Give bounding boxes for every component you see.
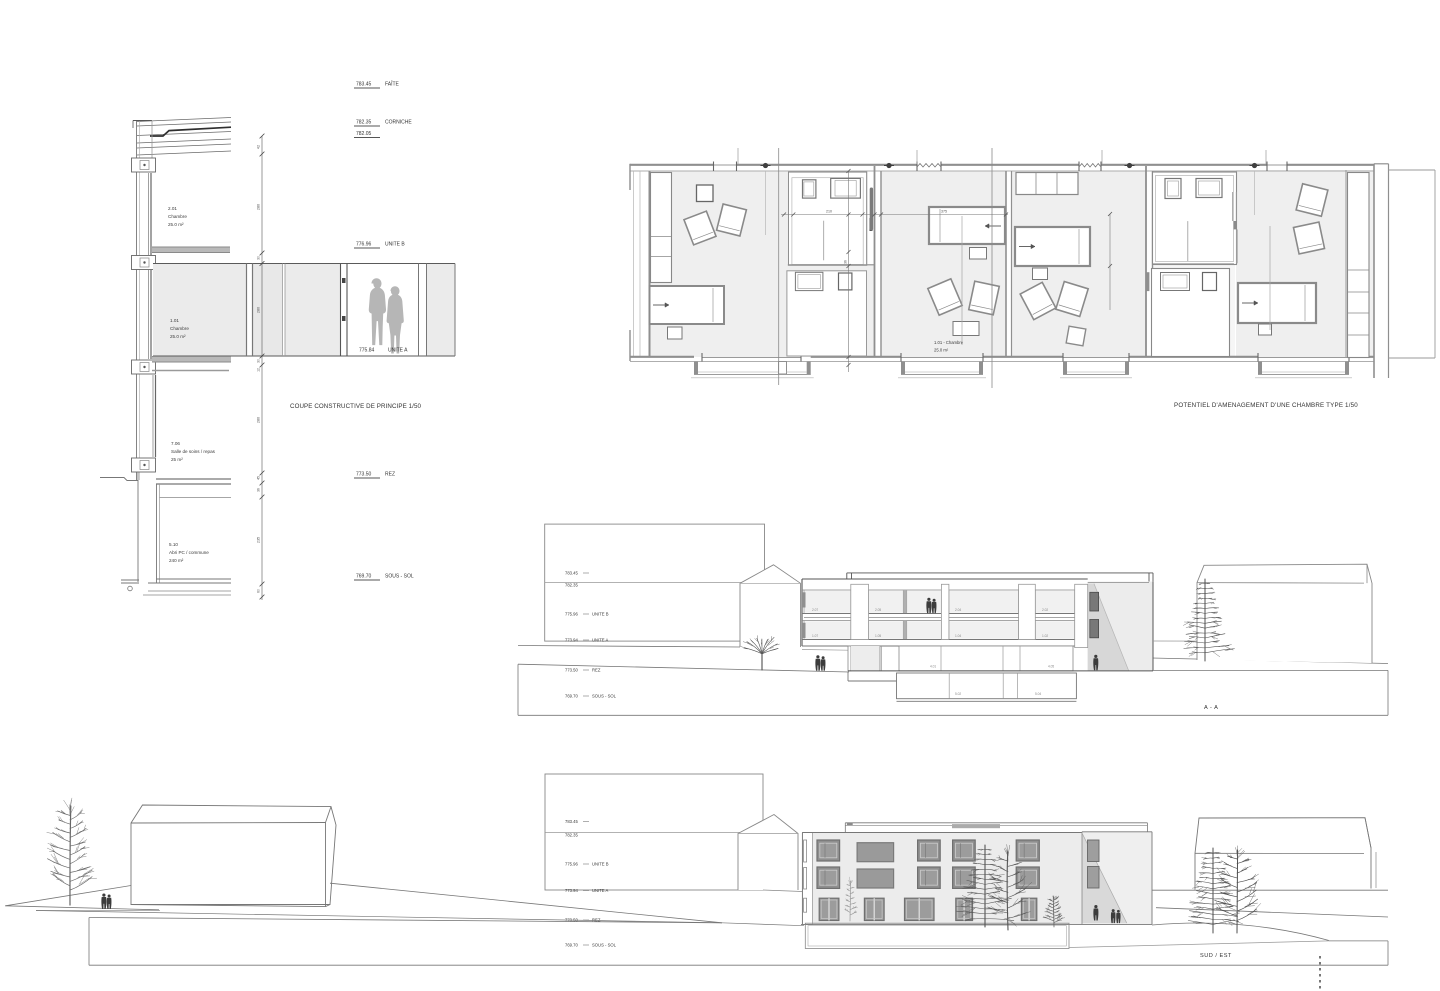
svg-text:A - A: A - A [1204,705,1218,711]
svg-text:7.06: 7.06 [171,441,180,446]
svg-text:280: 280 [257,417,261,423]
svg-text:REZ: REZ [592,668,601,673]
svg-text:210: 210 [826,210,832,214]
svg-text:Abri PC / commune: Abri PC / commune [169,550,209,555]
svg-text:SUD / EST: SUD / EST [1200,953,1232,959]
svg-text:783.45: 783.45 [356,82,372,88]
svg-text:782.35: 782.35 [565,833,578,838]
svg-text:25.0 m²: 25.0 m² [170,334,186,339]
svg-text:42: 42 [257,145,261,149]
svg-text:5.02: 5.02 [955,692,961,696]
svg-text:25.0 m²: 25.0 m² [934,348,949,353]
svg-text:30: 30 [257,359,261,363]
svg-text:775.96: 775.96 [565,612,578,617]
svg-text:782.05: 782.05 [356,131,372,137]
svg-text:769.70: 769.70 [565,694,578,699]
svg-text:775.84: 775.84 [359,348,375,354]
svg-text:782.35: 782.35 [565,583,578,588]
svg-text:773.50: 773.50 [565,668,578,673]
svg-text:2.02: 2.02 [1042,608,1048,612]
svg-text:240 m²: 240 m² [169,558,184,563]
svg-text:UNITE A: UNITE A [592,888,608,893]
svg-text:2.04: 2.04 [955,608,961,612]
svg-text:1.01 - Chambre: 1.01 - Chambre [934,340,964,345]
svg-text:30: 30 [257,256,261,260]
svg-text:25.0 m²: 25.0 m² [168,222,184,227]
svg-text:36: 36 [844,260,848,264]
svg-text:UNITE B: UNITE B [592,612,609,617]
svg-text:REZ: REZ [385,472,395,478]
svg-text:783.45: 783.45 [565,819,578,824]
svg-text:1.01: 1.01 [170,318,179,323]
svg-text:775.96: 775.96 [565,862,578,867]
svg-text:769.70: 769.70 [565,943,578,948]
svg-text:280: 280 [257,307,261,313]
svg-text:UNITE A: UNITE A [388,348,408,354]
svg-text:45: 45 [257,476,261,480]
svg-text:FAÎTE: FAÎTE [385,81,400,88]
svg-text:773.94: 773.94 [565,638,578,643]
svg-text:1.05: 1.05 [875,634,881,638]
svg-text:Chambre: Chambre [168,214,187,219]
svg-text:782.35: 782.35 [356,120,372,126]
svg-text:2.01: 2.01 [168,206,177,211]
svg-text:UNITE B: UNITE B [592,862,609,867]
svg-text:SOUS - SOL: SOUS - SOL [592,943,617,948]
svg-text:1.02: 1.02 [1042,634,1048,638]
svg-text:1.04: 1.04 [955,634,961,638]
svg-text:4.01: 4.01 [930,665,936,669]
svg-text:SOUS - SOL: SOUS - SOL [385,574,414,580]
svg-text:235: 235 [257,537,261,543]
svg-text:36: 36 [257,488,261,492]
svg-text:1.07: 1.07 [812,634,818,638]
svg-text:60: 60 [257,589,261,593]
svg-text:UNITE B: UNITE B [385,242,405,248]
svg-text:2.07: 2.07 [812,608,818,612]
svg-text:4.05: 4.05 [1048,665,1054,669]
svg-text:POTENTIEL D'AMENAGEMENT D'UNE: POTENTIEL D'AMENAGEMENT D'UNE CHAMBRE TY… [1174,402,1358,409]
svg-text:25 m²: 25 m² [171,457,183,462]
svg-text:5.04: 5.04 [1035,692,1041,696]
svg-text:UNITE A: UNITE A [592,638,608,643]
svg-text:773.50: 773.50 [356,472,372,478]
svg-text:375: 375 [941,210,947,214]
svg-text:5.10: 5.10 [169,542,178,547]
svg-text:773.94: 773.94 [565,888,578,893]
svg-text:Salle de soins / repas: Salle de soins / repas [171,449,216,454]
svg-text:SOUS - SOL: SOUS - SOL [592,694,617,699]
svg-text:2.05: 2.05 [875,608,881,612]
svg-text:COUPE CONSTRUCTIVE DE PRINCIPE: COUPE CONSTRUCTIVE DE PRINCIPE 1/50 [290,403,422,410]
svg-text:12: 12 [257,368,261,372]
svg-text:Chambre: Chambre [170,326,189,331]
svg-text:CORNICHE: CORNICHE [385,120,412,126]
svg-text:769.70: 769.70 [356,574,372,580]
svg-text:776.96: 776.96 [356,242,372,248]
svg-text:280: 280 [257,204,261,210]
svg-text:783.45: 783.45 [565,571,578,576]
